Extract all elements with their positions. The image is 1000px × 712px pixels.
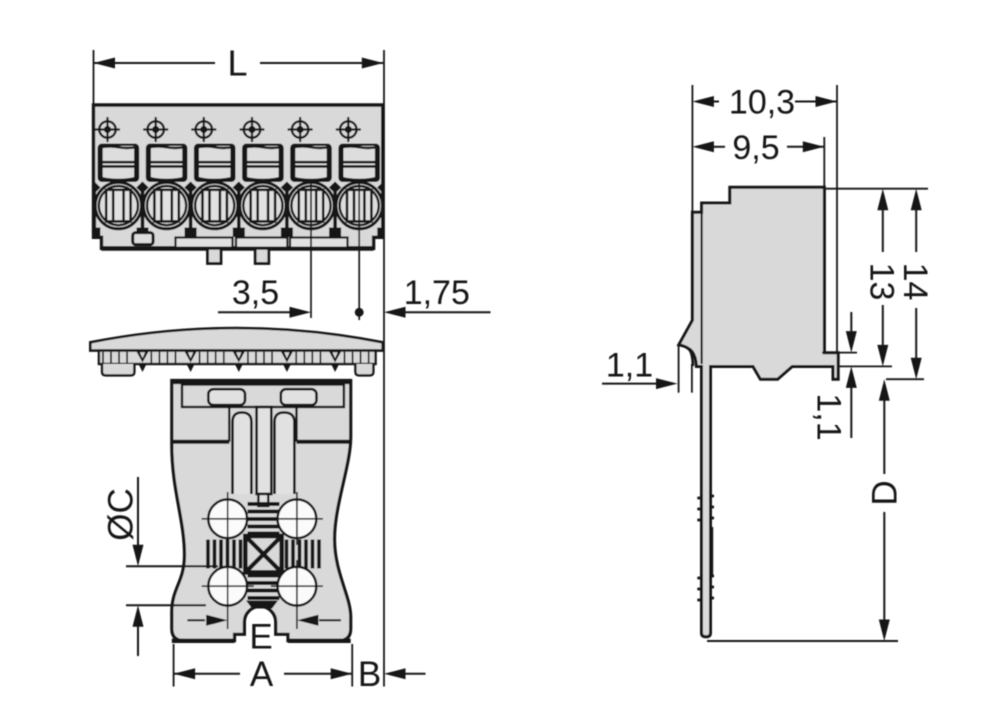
- svg-text:1,75: 1,75: [404, 274, 470, 312]
- svg-text:A: A: [250, 655, 274, 694]
- svg-text:D: D: [865, 480, 904, 505]
- svg-text:L: L: [227, 43, 247, 84]
- svg-text:B: B: [358, 655, 381, 694]
- svg-text:14: 14: [896, 263, 934, 301]
- svg-text:9,5: 9,5: [732, 129, 779, 167]
- svg-text:10,3: 10,3: [729, 84, 795, 122]
- svg-text:ØC: ØC: [102, 488, 141, 541]
- svg-text:1,1: 1,1: [810, 393, 848, 440]
- svg-text:E: E: [249, 618, 272, 657]
- svg-text:3,5: 3,5: [232, 274, 279, 312]
- svg-text:1,1: 1,1: [606, 347, 653, 385]
- svg-text:13: 13: [863, 263, 901, 301]
